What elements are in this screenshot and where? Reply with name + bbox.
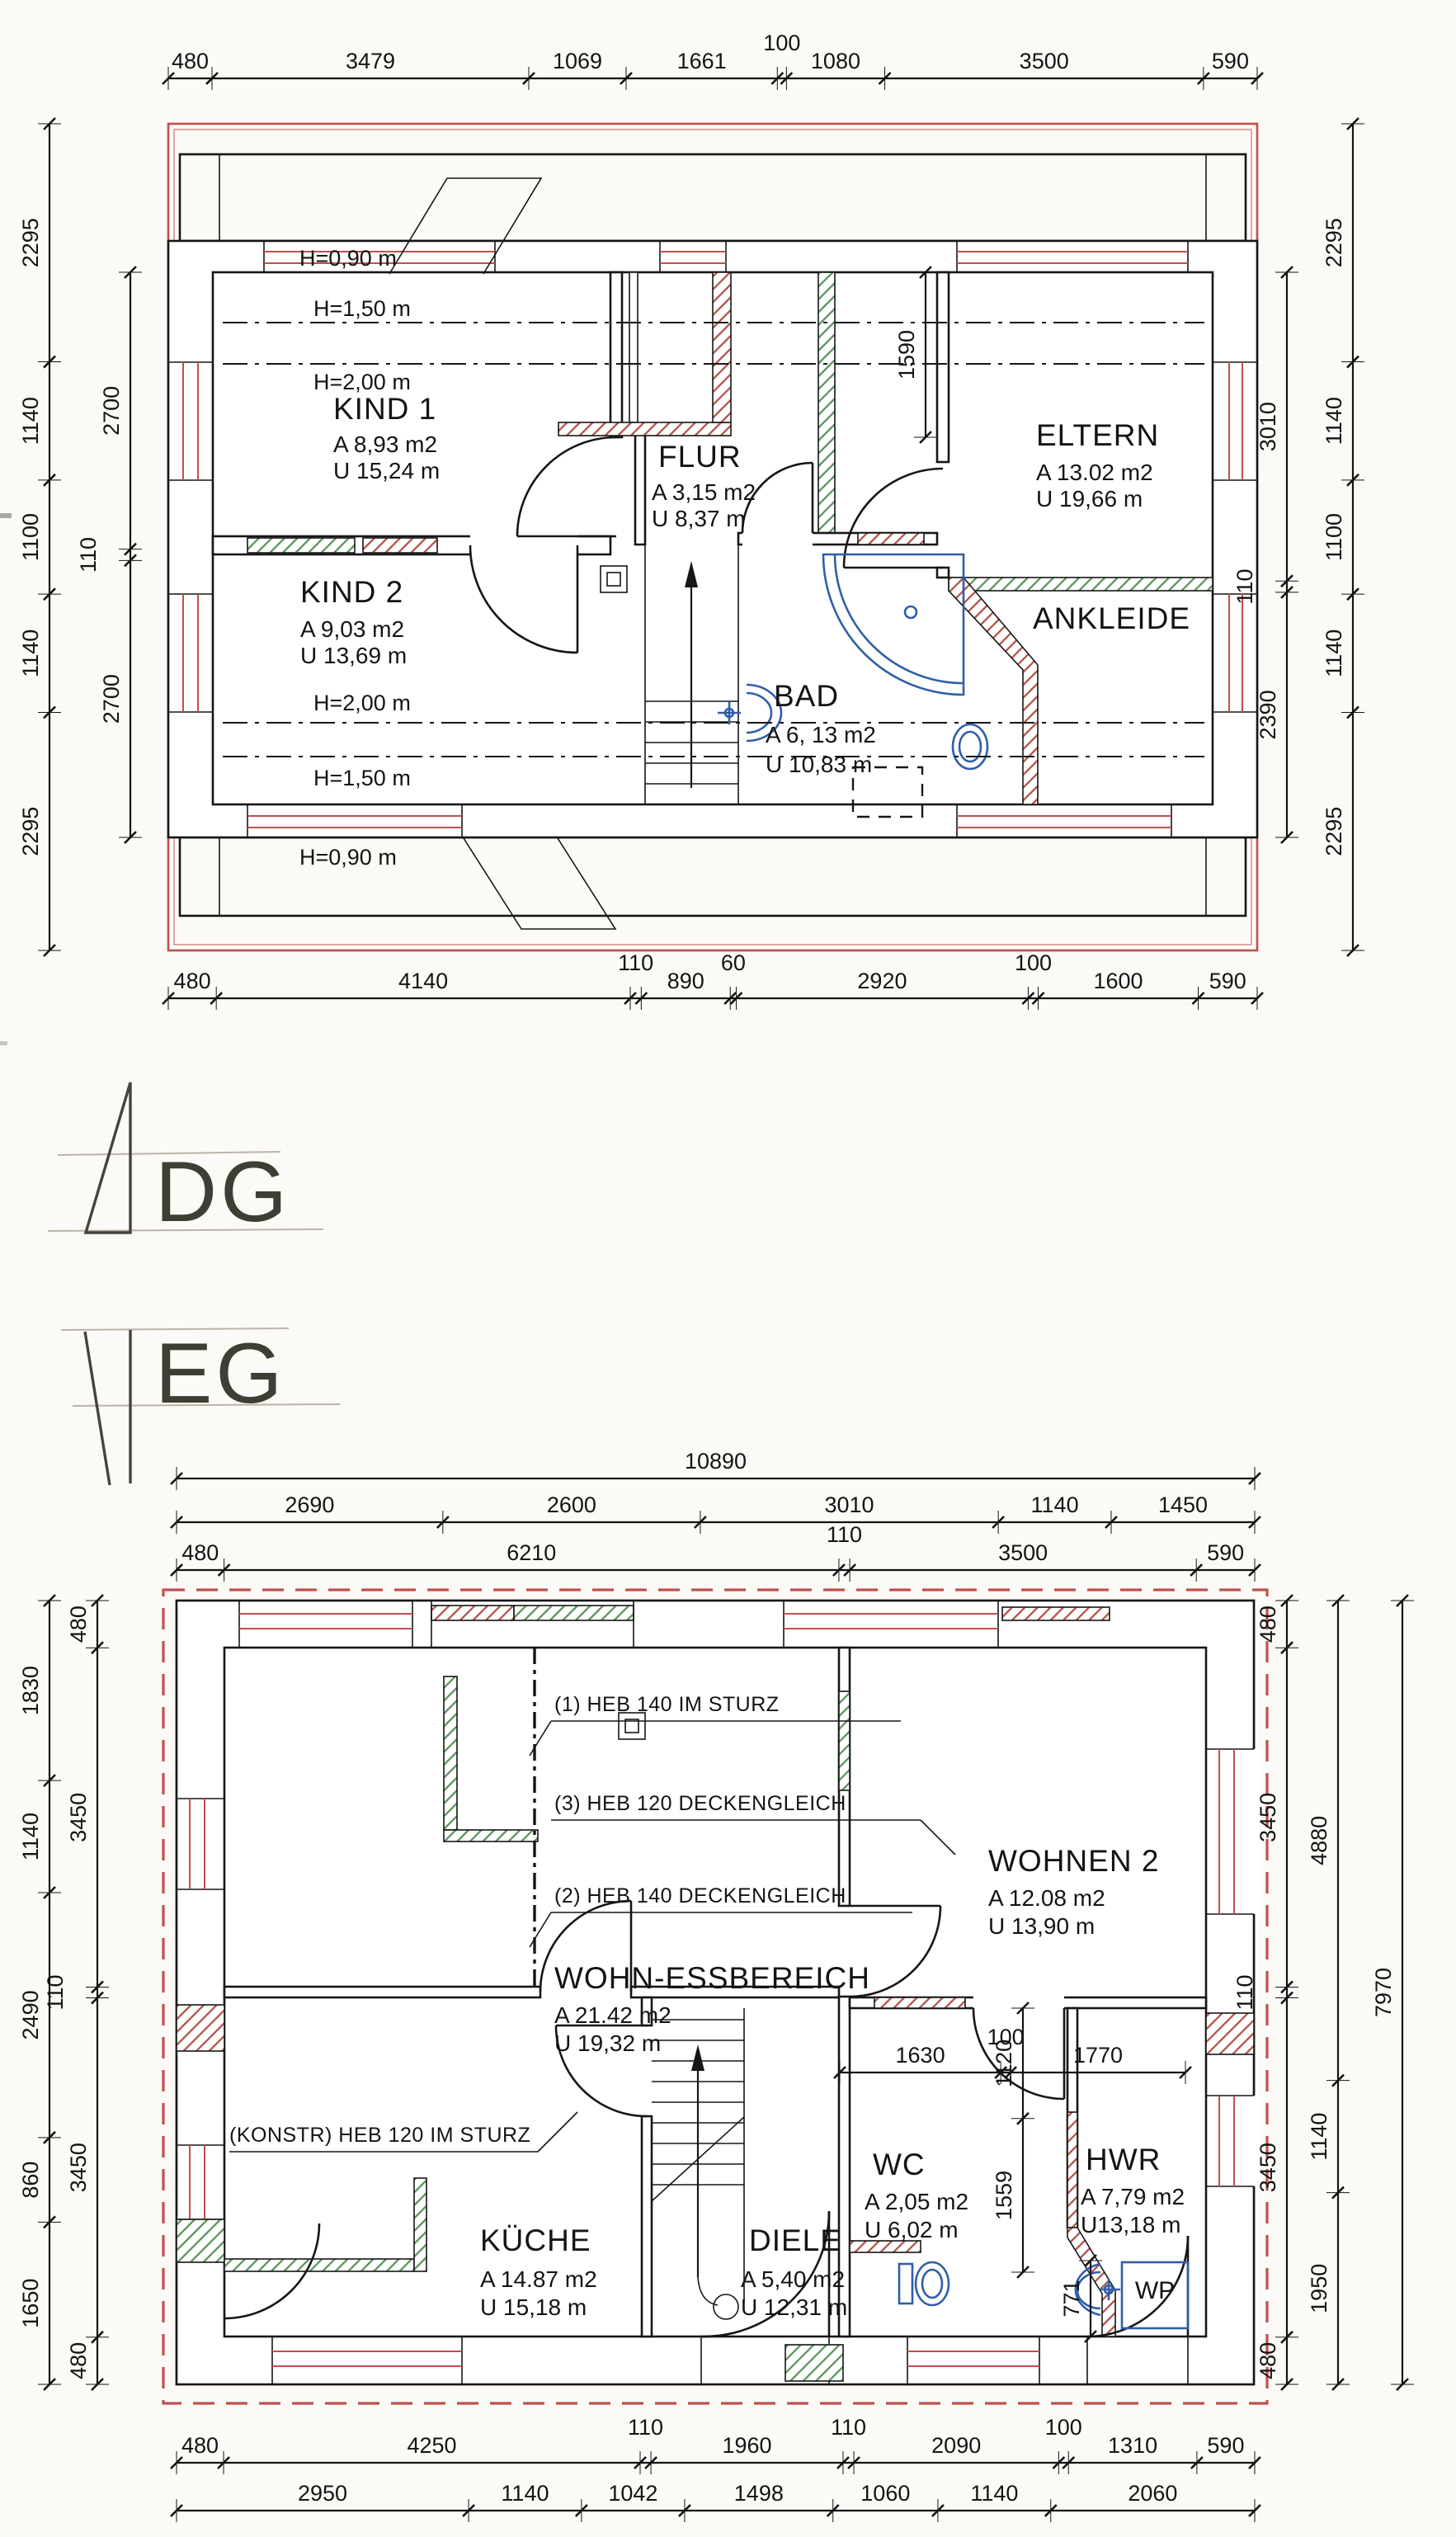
dimension-label: 110 [76,537,101,573]
dimension-label: 110 [618,950,653,975]
room-area: A 8,93 m2 [333,431,437,457]
dimension-label: 110 [831,2415,866,2440]
floorplan-drawing: H=0,90 m H=1,50 m H=2,00 m H=2,00 m H=1,… [0,0,1456,2537]
dimension-label: 2700 [99,386,124,436]
dimension-label: 2390 [1256,690,1280,739]
dimension-label: 2700 [99,674,124,724]
room-name-hwr: HWR [1086,2143,1161,2176]
height-label: H=2,00 m [313,370,411,394]
dimension-label: 2600 [547,1492,596,1517]
room-area: A 2,05 m2 [865,2189,968,2214]
dimension-label: 3450 [1256,2143,1280,2192]
scan-smudge [0,513,12,518]
dimension-label: 1650 [18,2279,43,2328]
dimension-label: 3450 [66,1793,91,1842]
height-label: H=0,90 m [299,246,397,271]
room-name-flur: FLUR [658,440,742,474]
dimension-label: 3479 [346,49,395,73]
room-perimeter: U 13,90 m [988,1913,1095,1939]
dimension-label: 2295 [1322,807,1346,856]
dimension-label: 2920 [857,969,907,993]
dimension-label: 1950 [1307,2264,1331,2313]
dimension-label: 1310 [1108,2433,1157,2458]
dimension-label: 1140 [1031,1492,1079,1517]
dimension-label: 2090 [931,2433,981,2458]
room-name-kueche: KÜCHE [480,2223,591,2257]
room-area: A 5,40 m2 [741,2266,845,2292]
dimension-label: 1498 [734,2481,784,2506]
dimension-label: 3500 [998,1540,1048,1565]
dimension-label: 1559 [992,2171,1016,2220]
room-perimeter: U13,18 m [1081,2212,1180,2238]
room-area: A 3,15 m2 [652,479,756,505]
room-perimeter: U 15,18 m [480,2294,587,2320]
dimension-label: 1600 [1093,969,1143,993]
dimension-label: 590 [1209,969,1246,993]
construction-note: (2) HEB 140 DECKENGLEICH [554,1884,846,1907]
dimension-label: 2295 [18,218,43,267]
dimension-label: 1830 [18,1666,43,1715]
room-name-kind1: KIND 1 [333,392,436,426]
room-name-bad: BAD [774,679,839,713]
dimension-label: 590 [1207,1540,1244,1565]
dimension-label: 3500 [1020,49,1069,73]
dimension-label: 480 [174,969,211,993]
room-perimeter: U 12,31 m [741,2294,847,2320]
eg-tag-triangle-icon [85,1330,130,1485]
dimension-label: 1140 [18,1813,43,1860]
room-name-eltern: ELTERN [1036,418,1159,452]
dimension-label: 110 [827,1522,862,1547]
dimension-label: 60 [721,950,746,975]
height-label: H=0,90 m [299,845,397,870]
dimension-label: 3010 [1256,402,1280,451]
dimension-label: 110 [43,1974,68,2010]
room-perimeter: U 15,24 m [333,458,440,483]
scan-smudge [0,1041,7,1045]
dimension-label: 2950 [298,2481,347,2506]
room-name-wohn: WOHN-ESSBEREICH [554,1961,870,1995]
dimension-label: 1770 [1073,2043,1123,2068]
dimension-label: 1140 [1322,397,1346,445]
dimension-label: 110 [1232,569,1257,605]
dimension-label: 480 [1256,1606,1280,1643]
construction-note: (1) HEB 140 IM STURZ [554,1693,780,1716]
dimension-label: 10890 [685,1449,747,1474]
dimension-label: 480 [181,1540,219,1565]
dimension-label: 480 [181,2433,219,2458]
dimension-label: 1450 [1158,1492,1208,1517]
dg-floorplan: H=0,90 m H=1,50 m H=2,00 m H=2,00 m H=1,… [168,124,1257,950]
dimension-label: 890 [667,969,704,993]
dimension-label: 1140 [501,2481,549,2506]
dimension-label: 2295 [1322,218,1346,267]
room-perimeter: U 6,02 m [865,2217,959,2242]
dimension-label: 2490 [18,1990,43,2040]
dimension-label: 590 [1212,49,1249,73]
dimension-label: 1100 [18,513,43,561]
dimension-label: 110 [628,2415,663,2440]
eg-floorplan: (1) HEB 140 IM STURZ (3) HEB 120 DECKENG… [163,1590,1267,2403]
dimension-label: 3450 [1256,1793,1280,1842]
room-area: A 7,79 m2 [1081,2184,1185,2209]
dimension-label: 100 [763,31,800,55]
room-name-kind2: KIND 2 [300,575,403,609]
height-label: H=2,00 m [313,691,411,715]
room-area: A 12.08 m2 [988,1885,1105,1911]
dimension-label: 1060 [860,2481,910,2506]
dimension-label: 1140 [1322,630,1346,677]
floor-tags: DG EG [48,1082,340,1485]
dimension-label: 480 [1256,2342,1280,2379]
dimension-label: 1120 [992,2040,1016,2087]
room-area: A 21.42 m2 [554,2002,671,2028]
dimension-label: 1590 [894,330,919,380]
room-area: A 14.87 m2 [480,2266,597,2292]
dg-tag-triangle-icon [86,1082,130,1233]
dimension-label: 860 [18,2162,43,2199]
dimension-label: 1140 [18,397,43,445]
dimension-label: 4140 [398,969,448,993]
dimension-label: 100 [1045,2415,1082,2440]
dimension-label: 1100 [1322,513,1346,561]
dimension-label: 1960 [722,2433,771,2458]
dimension-label: 771 [1059,2280,1084,2317]
height-label: H=1,50 m [313,296,411,321]
room-name-ankleide: ANKLEIDE [1033,601,1190,635]
height-label: H=1,50 m [313,766,411,790]
room-name-wohnen2: WOHNEN 2 [988,1844,1159,1878]
dimension-label: 1140 [970,2481,1018,2506]
floor-label-eg: EG [155,1326,285,1422]
dimension-label: 590 [1207,2433,1244,2458]
room-name-wp: WP [1135,2277,1175,2304]
dimension-label: 1140 [1307,2113,1331,2161]
room-name-wc: WC [873,2148,926,2181]
dimension-label: 100 [1015,950,1052,975]
construction-note: (KONSTR) HEB 120 IM STURZ [229,2124,530,2147]
dimension-label: 110 [1232,1974,1257,2010]
room-perimeter: U 13,69 m [300,643,407,668]
room-perimeter: U 10,83 m [766,752,872,777]
room-perimeter: U 8,37 m [652,506,746,531]
dimension-label: 2060 [1128,2481,1177,2506]
dimension-label: 1661 [677,49,727,73]
dimension-label: 1140 [18,630,43,677]
dimension-label: 1042 [608,2481,657,2506]
construction-note: (3) HEB 120 DECKENGLEICH [554,1792,846,1815]
floor-label-dg: DG [155,1144,290,1240]
floorplan-scan-page: H=0,90 m H=1,50 m H=2,00 m H=2,00 m H=1,… [0,0,1456,2537]
dimension-label: 480 [66,2342,91,2379]
room-area: A 13.02 m2 [1036,460,1153,485]
room-name-diele: DIELE [749,2223,841,2257]
room-perimeter: U 19,32 m [554,2030,661,2056]
room-area: A 6, 13 m2 [766,722,876,747]
dimension-label: 1080 [811,49,860,73]
dimension-label: 480 [66,1606,91,1643]
dimension-label: 4880 [1307,1816,1331,1865]
dimension-label: 7970 [1371,1968,1396,2017]
room-area: A 9,03 m2 [300,616,404,642]
dimension-label: 480 [172,49,209,73]
dimension-label: 2690 [285,1492,334,1517]
dimension-label: 3010 [824,1492,874,1517]
dimension-label: 3450 [66,2143,91,2192]
dimension-label: 2295 [18,807,43,856]
dimension-label: 6210 [507,1540,556,1565]
dimension-label: 1069 [553,49,602,73]
room-perimeter: U 19,66 m [1036,486,1143,512]
dimension-label: 4250 [407,2433,456,2458]
dimension-label: 1630 [896,2043,945,2068]
